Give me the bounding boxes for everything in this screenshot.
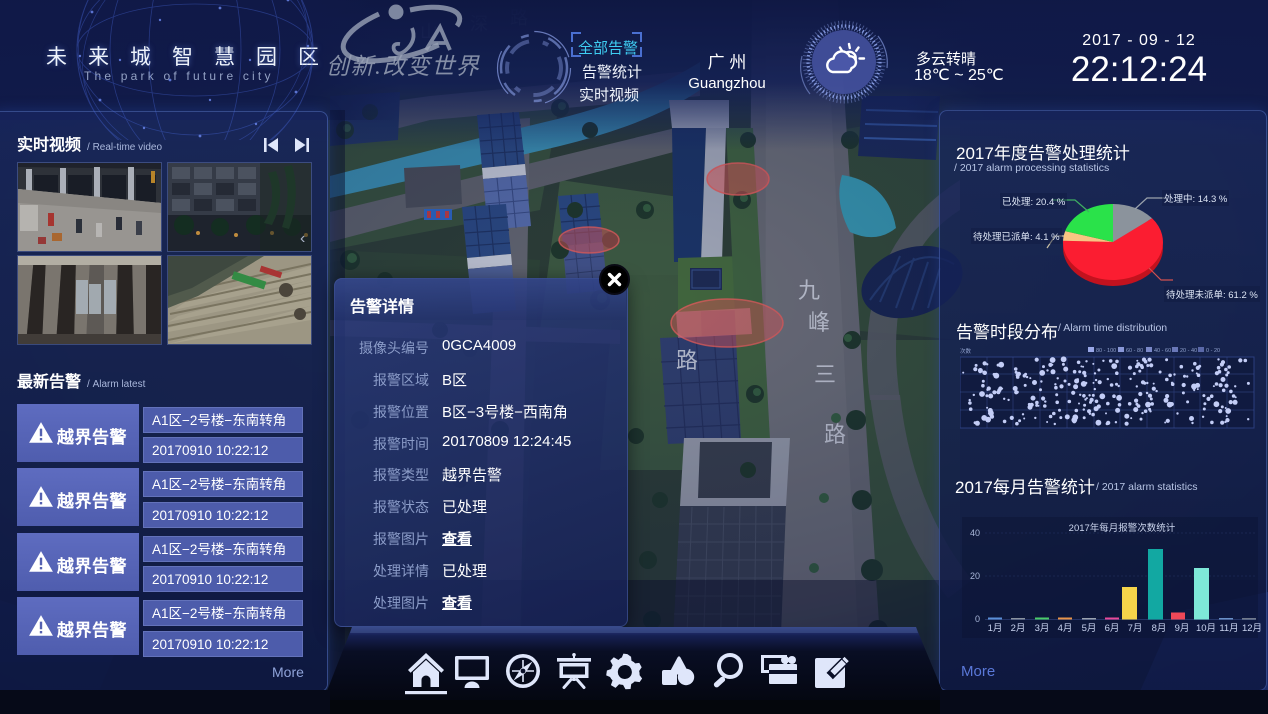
svg-text:80 - 100: 80 - 100	[1096, 348, 1116, 354]
svg-text:40: 40	[970, 528, 980, 538]
svg-text:60 - 80: 60 - 80	[1126, 348, 1143, 354]
svg-text:20: 20	[970, 571, 980, 581]
svg-text:创新.改变世界: 创新.改变世界	[326, 54, 481, 79]
svg-text:20 - 40: 20 - 40	[1180, 348, 1197, 354]
svg-text:次数: 次数	[960, 347, 972, 355]
svg-text:0 - 20: 0 - 20	[1206, 348, 1220, 354]
svg-text:40 - 60: 40 - 60	[1154, 348, 1171, 354]
